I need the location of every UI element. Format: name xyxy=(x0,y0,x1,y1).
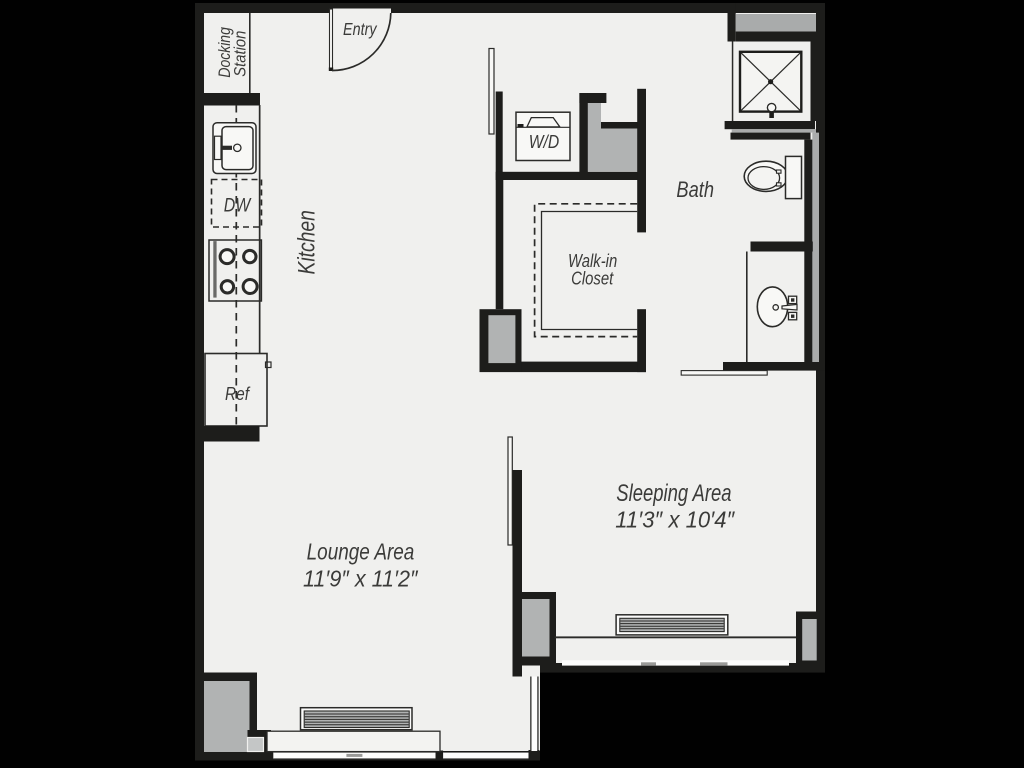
svg-text:Kitchen: Kitchen xyxy=(294,210,321,274)
svg-text:Ref: Ref xyxy=(225,384,251,404)
svg-text:W/D: W/D xyxy=(529,131,560,152)
svg-text:Entry: Entry xyxy=(343,19,378,39)
svg-text:Bath: Bath xyxy=(676,177,714,202)
svg-text:Sleeping Area: Sleeping Area xyxy=(616,480,731,507)
svg-text:Lounge Area: Lounge Area xyxy=(307,538,415,564)
svg-text:DW: DW xyxy=(224,196,252,217)
svg-text:11′9″ x 11′2″: 11′9″ x 11′2″ xyxy=(303,566,418,592)
svg-text:11′3″ x 10′4″: 11′3″ x 10′4″ xyxy=(615,507,735,533)
svg-text:Closet: Closet xyxy=(571,268,614,288)
svg-text:Station: Station xyxy=(232,31,250,77)
